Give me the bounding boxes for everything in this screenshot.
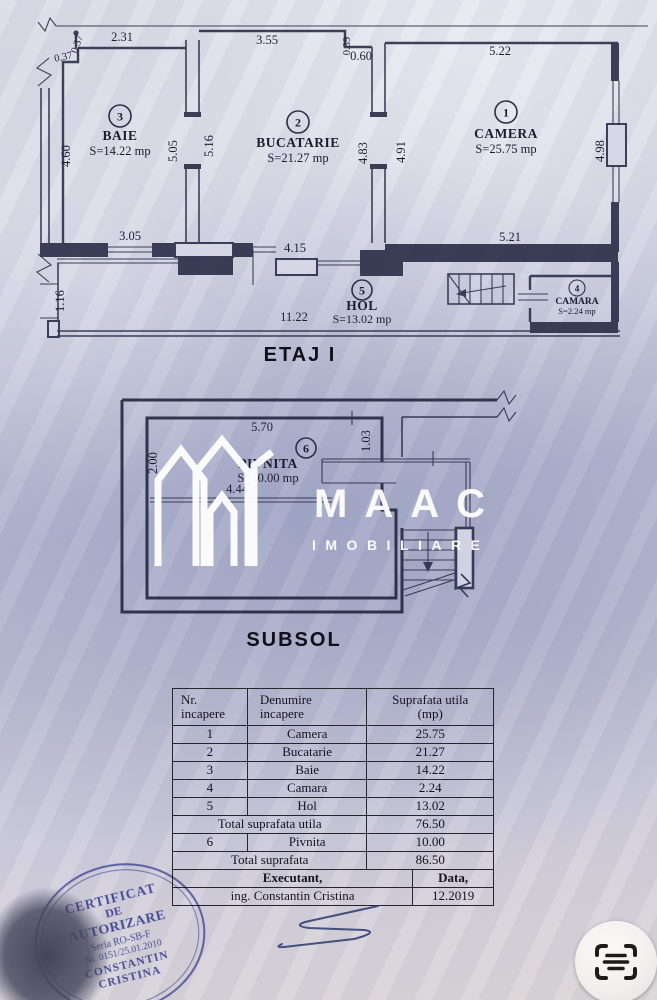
- dim-baie-step-v: 0.37: [70, 34, 86, 55]
- table-total-utila-row: Total suprafata utila76.50: [173, 816, 494, 834]
- room-area-hol: S=13.02 mp: [333, 312, 392, 326]
- text-scan-button[interactable]: [575, 921, 657, 1000]
- room-area-camara: S=2.24 mp: [558, 306, 595, 316]
- stamp-line: CRISTINA: [97, 964, 162, 992]
- subsol-plan-linework: [122, 391, 516, 612]
- table-signature-row: ing. Constantin Cristina 12.2019: [173, 888, 494, 906]
- table-row-pivnita: 6Pivnita10.00: [173, 834, 494, 852]
- dim-camera-bottom: 5.21: [499, 230, 521, 244]
- room-number-pivnita: 6: [303, 442, 309, 456]
- dim-camera-left: 4.91: [394, 141, 408, 163]
- room-area-baie: S=14.22 mp: [89, 144, 150, 158]
- room-number-baie: 3: [117, 110, 123, 124]
- date-value: 12.2019: [413, 888, 494, 906]
- floor-plan-photo: 2.31 0.37 0.37 4.60 5.05 5.16 3.05 3.55 …: [0, 0, 657, 1000]
- room-number-camera: 1: [503, 106, 509, 120]
- table-header-row: Nr.incapere Denumireincapere Suprafata u…: [173, 689, 494, 726]
- dim-hol-left: 1.16: [53, 290, 67, 312]
- header-nr-incapere: Nr.incapere: [173, 689, 248, 726]
- etaj-title: ETAJ I: [264, 344, 337, 366]
- stamp-line: Nr. 0151/25.01.2010: [84, 938, 163, 967]
- dim-buc-right: 4.83: [356, 142, 370, 164]
- header-suprafata: Suprafata utila(mp): [367, 689, 494, 726]
- room-number-hol: 5: [359, 284, 365, 298]
- dim-baie-bottom: 3.05: [119, 229, 141, 243]
- dim-camera-right: 4.98: [593, 140, 607, 162]
- subsol-plan-labels: 5.70 2.00 1.03 4.44 6 PIVNITA S=10.00 mp…: [146, 420, 373, 651]
- executant-name: ing. Constantin Cristina: [173, 888, 413, 906]
- dim-buc-bottom: 4.15: [284, 241, 306, 255]
- dim-hol-width: 11.22: [280, 310, 308, 324]
- dim-pivnita-top: 5.70: [251, 420, 273, 434]
- areas-table: Nr.incapere Denumireincapere Suprafata u…: [172, 688, 494, 906]
- stamp-line: CERTIFICAT: [63, 880, 157, 917]
- table-row: 5Hol13.02: [173, 798, 494, 816]
- table-row: 3Baie14.22: [173, 762, 494, 780]
- room-name-hol: HOL: [346, 298, 378, 313]
- table-row: 2Bucatarie21.27: [173, 744, 494, 762]
- dim-buc-left: 5.16: [202, 135, 216, 157]
- room-name-baie: BAIE: [102, 128, 137, 143]
- room-area-pivnita: S=10.00 mp: [237, 471, 298, 485]
- dim-buc-top: 3.55: [256, 33, 278, 47]
- dim-pivnita-left: 2.00: [146, 452, 160, 474]
- subsol-title: SUBSOL: [246, 629, 341, 651]
- room-name-bucatarie: BUCATARIE: [256, 135, 340, 150]
- table-executant-header-row: Executant, Data,: [173, 870, 494, 888]
- room-area-bucatarie: S=21.27 mp: [267, 151, 328, 165]
- text-scan-icon: [593, 942, 639, 982]
- table-row: 4Camara2.24: [173, 780, 494, 798]
- stamp-line: CONSTANTIN: [84, 949, 170, 982]
- table-row: 1Camera25.75: [173, 726, 494, 744]
- etaj-plan-labels: 2.31 0.37 0.37 4.60 5.05 5.16 3.05 3.55 …: [53, 30, 607, 366]
- etaj-plan-linework: [37, 18, 648, 337]
- room-number-bucatarie: 2: [295, 116, 301, 130]
- dim-buc-step-h: 0.60: [350, 49, 372, 63]
- room-number-camara: 4: [575, 284, 580, 294]
- stamp-line: Seria RO-SB-F: [90, 929, 152, 955]
- dim-baie-left: 4.60: [59, 145, 73, 167]
- header-denumire: Denumireincapere: [247, 689, 367, 726]
- dim-camera-top: 5.22: [489, 44, 511, 58]
- room-name-pivnita: PIVNITA: [238, 456, 298, 471]
- dim-baie-right: 5.05: [166, 140, 180, 162]
- table-total-row: Total suprafata86.50: [173, 852, 494, 870]
- dim-pivnita-right: 1.03: [359, 430, 373, 452]
- room-area-camera: S=25.75 mp: [475, 142, 536, 156]
- room-name-camera: CAMERA: [474, 126, 538, 141]
- stamp-line: AUTORIZARE: [67, 907, 167, 946]
- stamp-line: DE: [104, 904, 123, 921]
- dim-baie-top: 2.31: [111, 30, 133, 44]
